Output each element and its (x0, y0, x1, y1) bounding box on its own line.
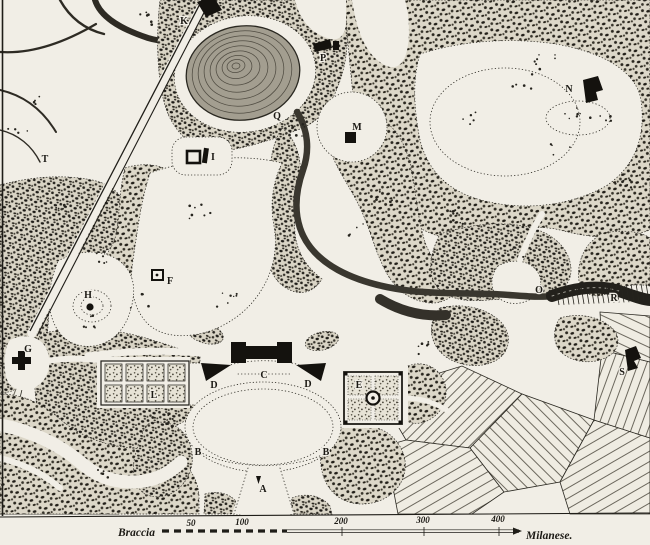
scale-unit-right: Milanese. (525, 530, 572, 542)
map-label-Q: Q (273, 111, 281, 122)
map-label-A: A (259, 484, 267, 495)
scale-tick-100: 100 (235, 517, 249, 527)
map-label-G: G (24, 344, 32, 355)
scale-tick-400: 400 (490, 514, 505, 524)
map-label-F: F (167, 276, 173, 287)
map-label-T: T (42, 154, 49, 165)
map-page: K T P Q M I N F H G O R S C D D L E B B … (0, 0, 650, 545)
map-label-K: K (180, 16, 188, 27)
map-label-D-right: D (304, 379, 311, 390)
map-label-N: N (565, 84, 573, 95)
map-label-D-left: D (210, 380, 217, 391)
scale-tick-300: 300 (415, 515, 430, 525)
building-M (345, 132, 356, 143)
map-label-I: I (211, 152, 215, 163)
map-label-O: O (535, 285, 543, 296)
map-label-M: M (352, 122, 362, 133)
map-label-B-right: B (323, 447, 330, 458)
mound-feature-H (86, 303, 93, 310)
map-label-C: C (260, 370, 267, 381)
scale-tick-200: 200 (333, 516, 348, 526)
scale-unit-left: Braccia (117, 527, 155, 539)
map-label-E: E (356, 380, 363, 391)
parterre-garden (101, 361, 189, 405)
walled-garden (344, 372, 402, 424)
map-label-L: L (151, 390, 158, 401)
map-label-S: S (619, 367, 625, 378)
scale-tick-50: 50 (187, 518, 197, 528)
map-label-B-left: B (195, 447, 202, 458)
map-label-H: H (84, 290, 92, 301)
map-label-P: P (320, 53, 326, 64)
map-label-R: R (610, 293, 618, 304)
garden-map: K T P Q M I N F H G O R S C D D L E B B … (0, 0, 650, 545)
